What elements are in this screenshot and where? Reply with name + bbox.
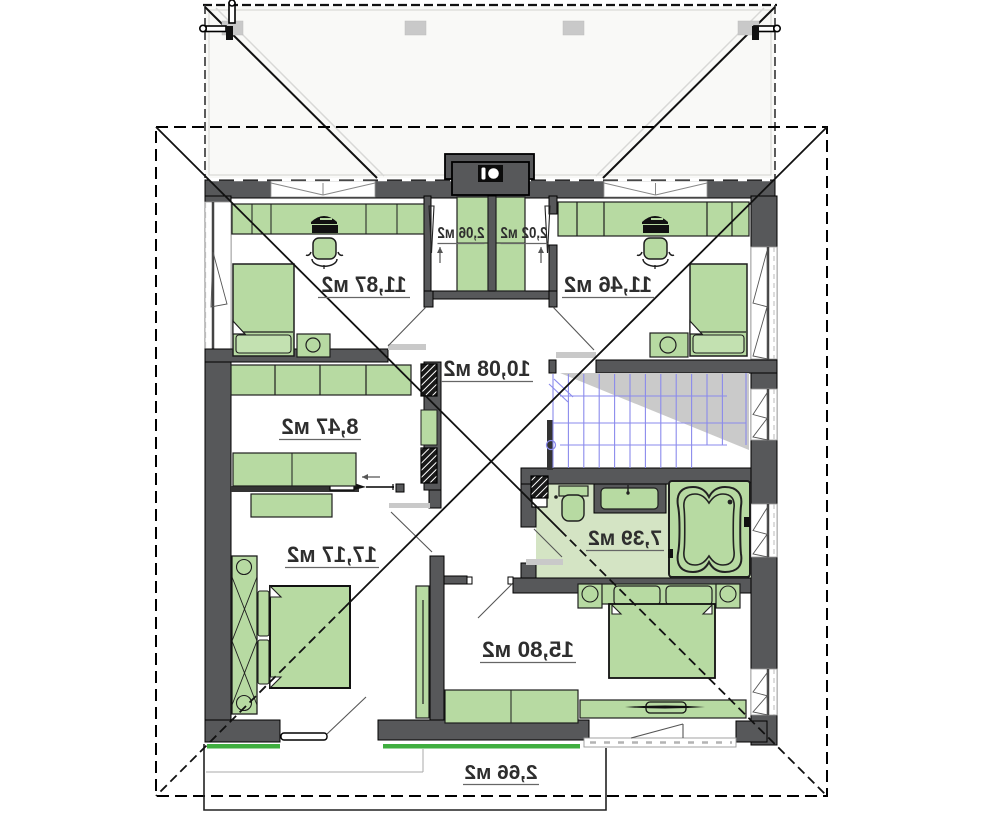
svg-text:8,47 м2: 8,47 м2 (282, 414, 359, 439)
svg-text:7,39 м2: 7,39 м2 (588, 527, 662, 550)
svg-text:10,08 м2: 10,08 м2 (444, 356, 531, 381)
svg-text:2,02 м2: 2,02 м2 (500, 225, 547, 242)
svg-text:15,80 м2: 15,80 м2 (482, 637, 574, 662)
svg-text:2,66 м2: 2,66 м2 (465, 762, 538, 784)
svg-text:11,46 м2: 11,46 м2 (564, 272, 652, 297)
svg-text:11,87 м2: 11,87 м2 (322, 272, 407, 297)
svg-text:17,17 м2: 17,17 м2 (287, 542, 377, 567)
svg-text:2,06 м2: 2,06 м2 (437, 225, 484, 242)
